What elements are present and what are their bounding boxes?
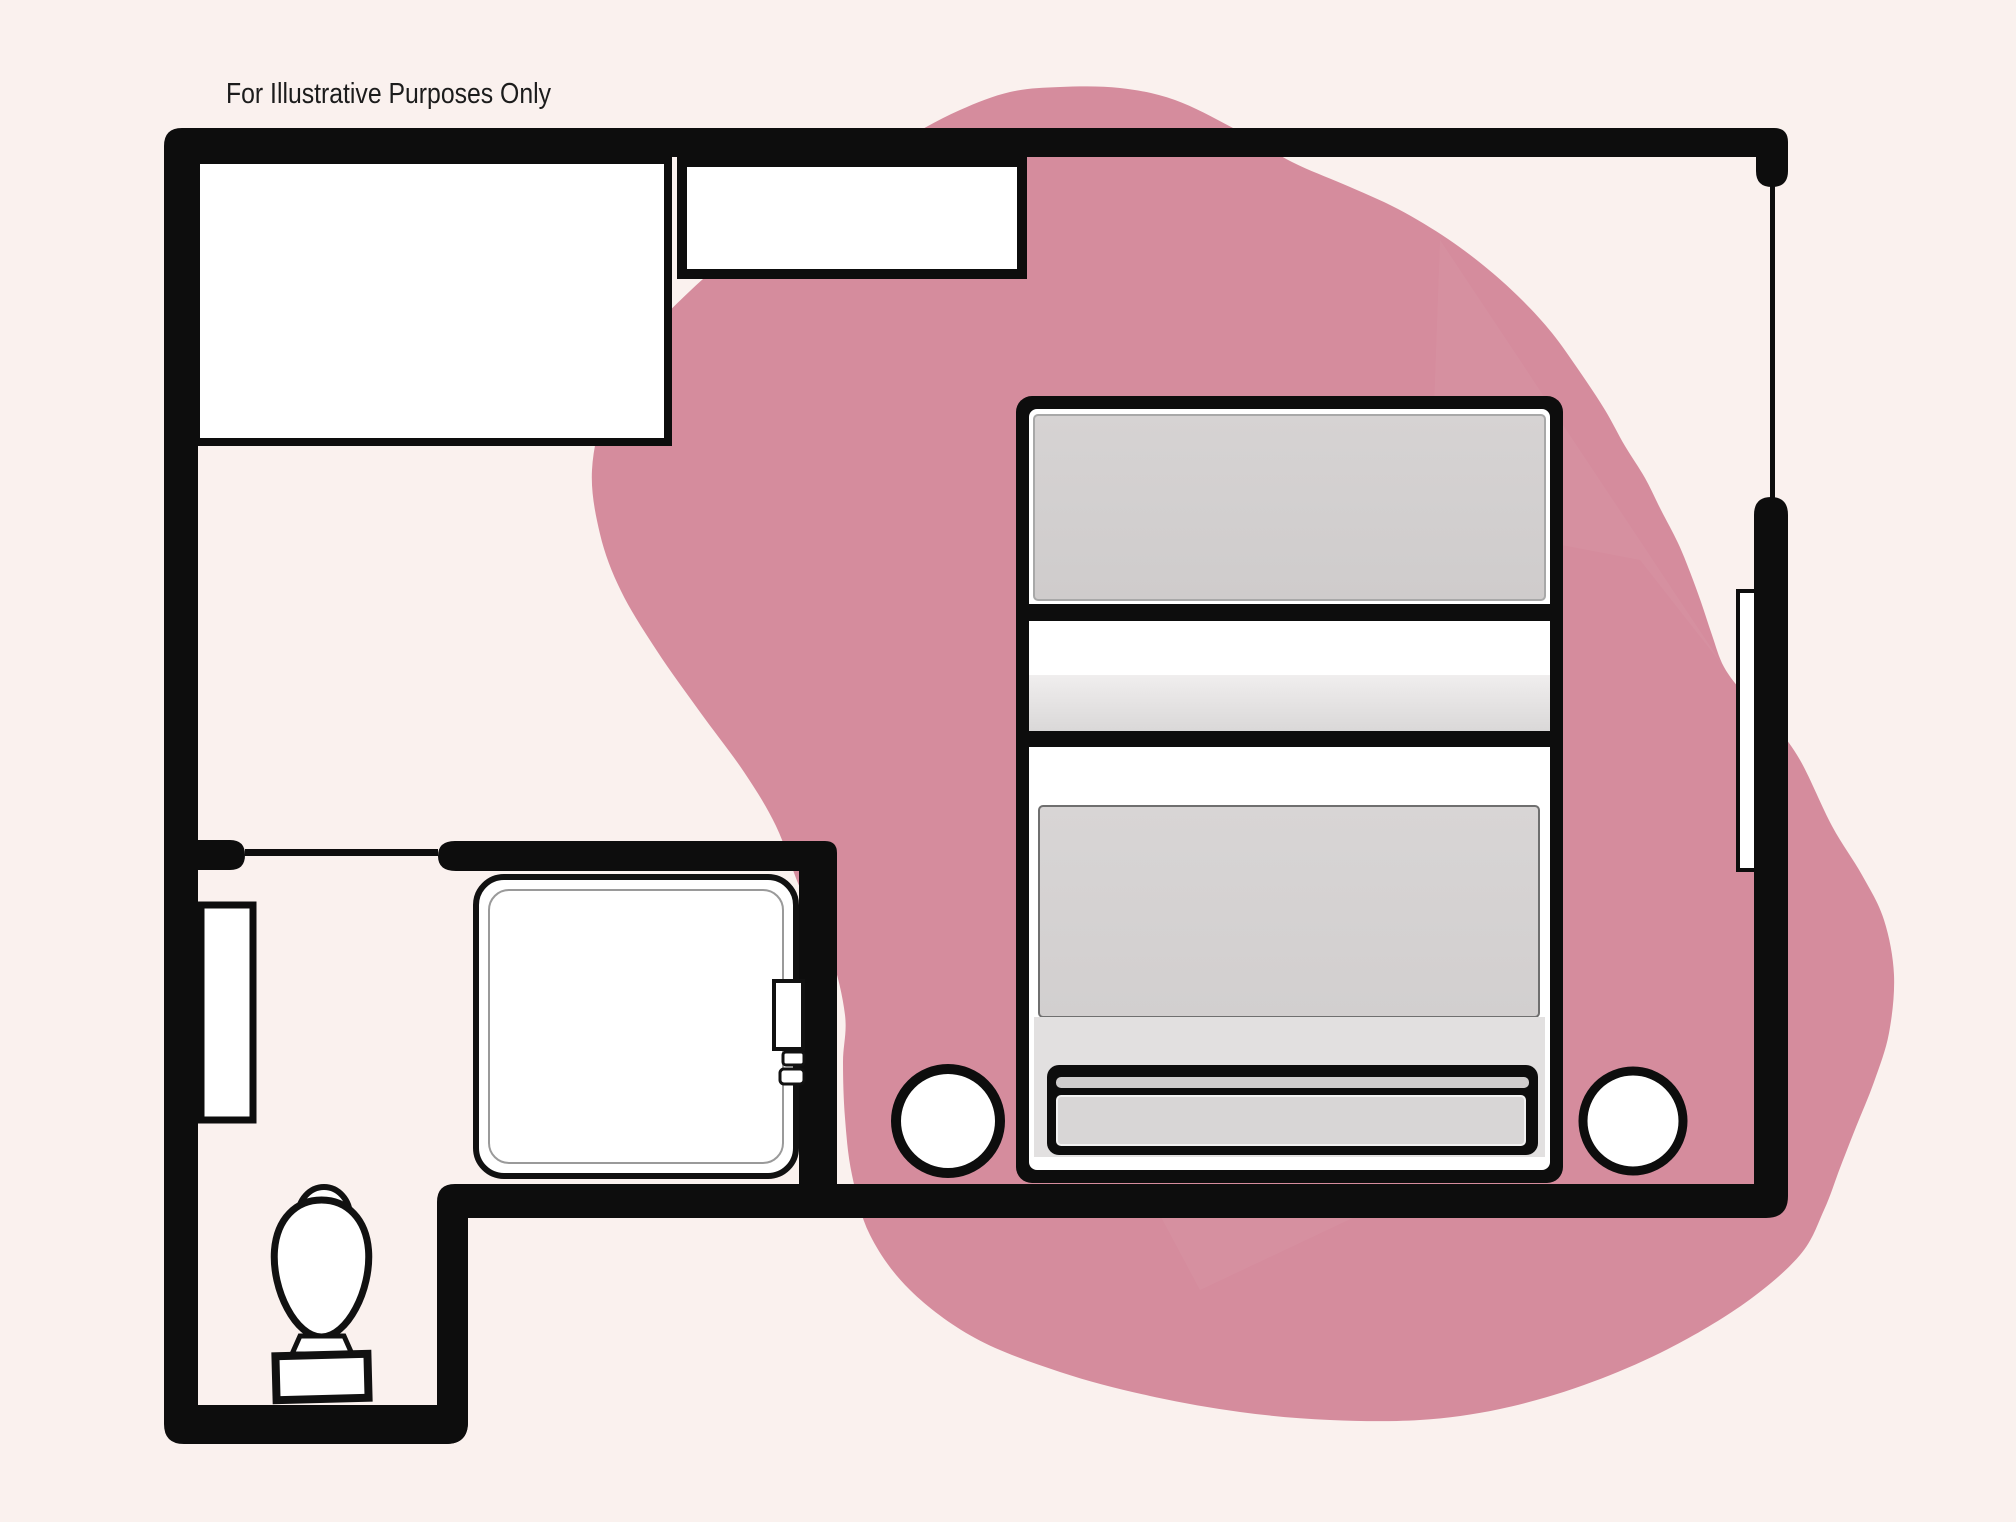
- svg-text:For Illustrative Purposes Only: For Illustrative Purposes Only: [226, 78, 551, 110]
